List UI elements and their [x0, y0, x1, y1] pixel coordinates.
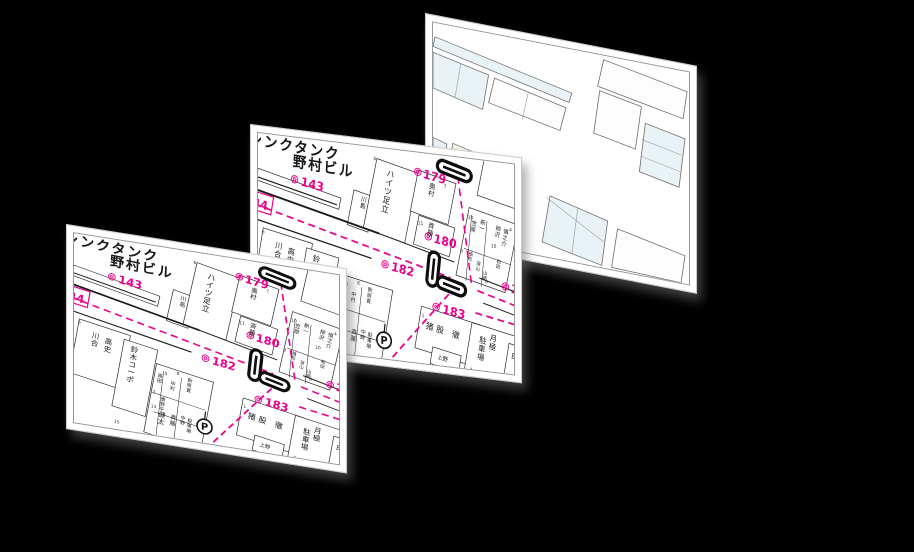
lot-num-5: 5 — [165, 371, 168, 377]
lot-num-6: 6 — [262, 229, 265, 236]
lot-num-9: 9 — [460, 248, 463, 255]
lot-num-8: 8 — [309, 377, 312, 383]
dark-backdrop: Pシンクタンク野村ビル143144179180182183184ハイツ足立川島奥… — [0, 0, 914, 552]
lot-num-10: 10 — [291, 318, 297, 325]
parking-letter: P — [381, 335, 389, 347]
lot-num-1: 1 — [422, 313, 425, 320]
lot-num-10: 10 — [468, 215, 474, 222]
lot-num-8: 8 — [485, 279, 488, 286]
lot-num-11: 11 — [418, 220, 424, 227]
lot-num-11: 11 — [239, 320, 245, 327]
lot-num-6: 6 — [78, 320, 81, 326]
lot-num-8b: 8 — [357, 280, 360, 287]
lot-num-3: 3 — [470, 367, 473, 374]
lot-num-10b: 10 — [491, 243, 497, 250]
lot-num-7b: 7 — [153, 389, 156, 395]
lot-num-4: 4 — [509, 227, 512, 234]
lot-num-13: 13 — [151, 404, 157, 411]
lot-num-1: 1 — [243, 404, 246, 410]
lot-num-4: 4 — [334, 331, 337, 337]
front-map-card: Pシンクタンク野村ビル143144179180182183184ハイツ足立川島奥… — [66, 224, 347, 474]
lot-num-9: 9 — [283, 347, 286, 353]
front-map-frame: Pシンクタンク野村ビル143144179180182183184ハイツ足立川島奥… — [73, 232, 340, 465]
lot-num-10b: 10 — [315, 345, 321, 352]
lot-num-6b: 6 — [373, 156, 376, 163]
lot-num-7: 7 — [444, 184, 447, 191]
parking-letter: P — [201, 422, 208, 434]
lot-num-7: 7 — [266, 289, 269, 295]
lot-num-15: 15 — [114, 419, 120, 426]
lot-num-3: 3 — [293, 455, 296, 461]
lot-num-6b: 6 — [194, 260, 197, 266]
lot-num-8b: 8 — [177, 371, 180, 377]
detailed-residential-map: Pシンクタンク野村ビル143144179180182183184ハイツ足立川島奥… — [74, 233, 339, 464]
